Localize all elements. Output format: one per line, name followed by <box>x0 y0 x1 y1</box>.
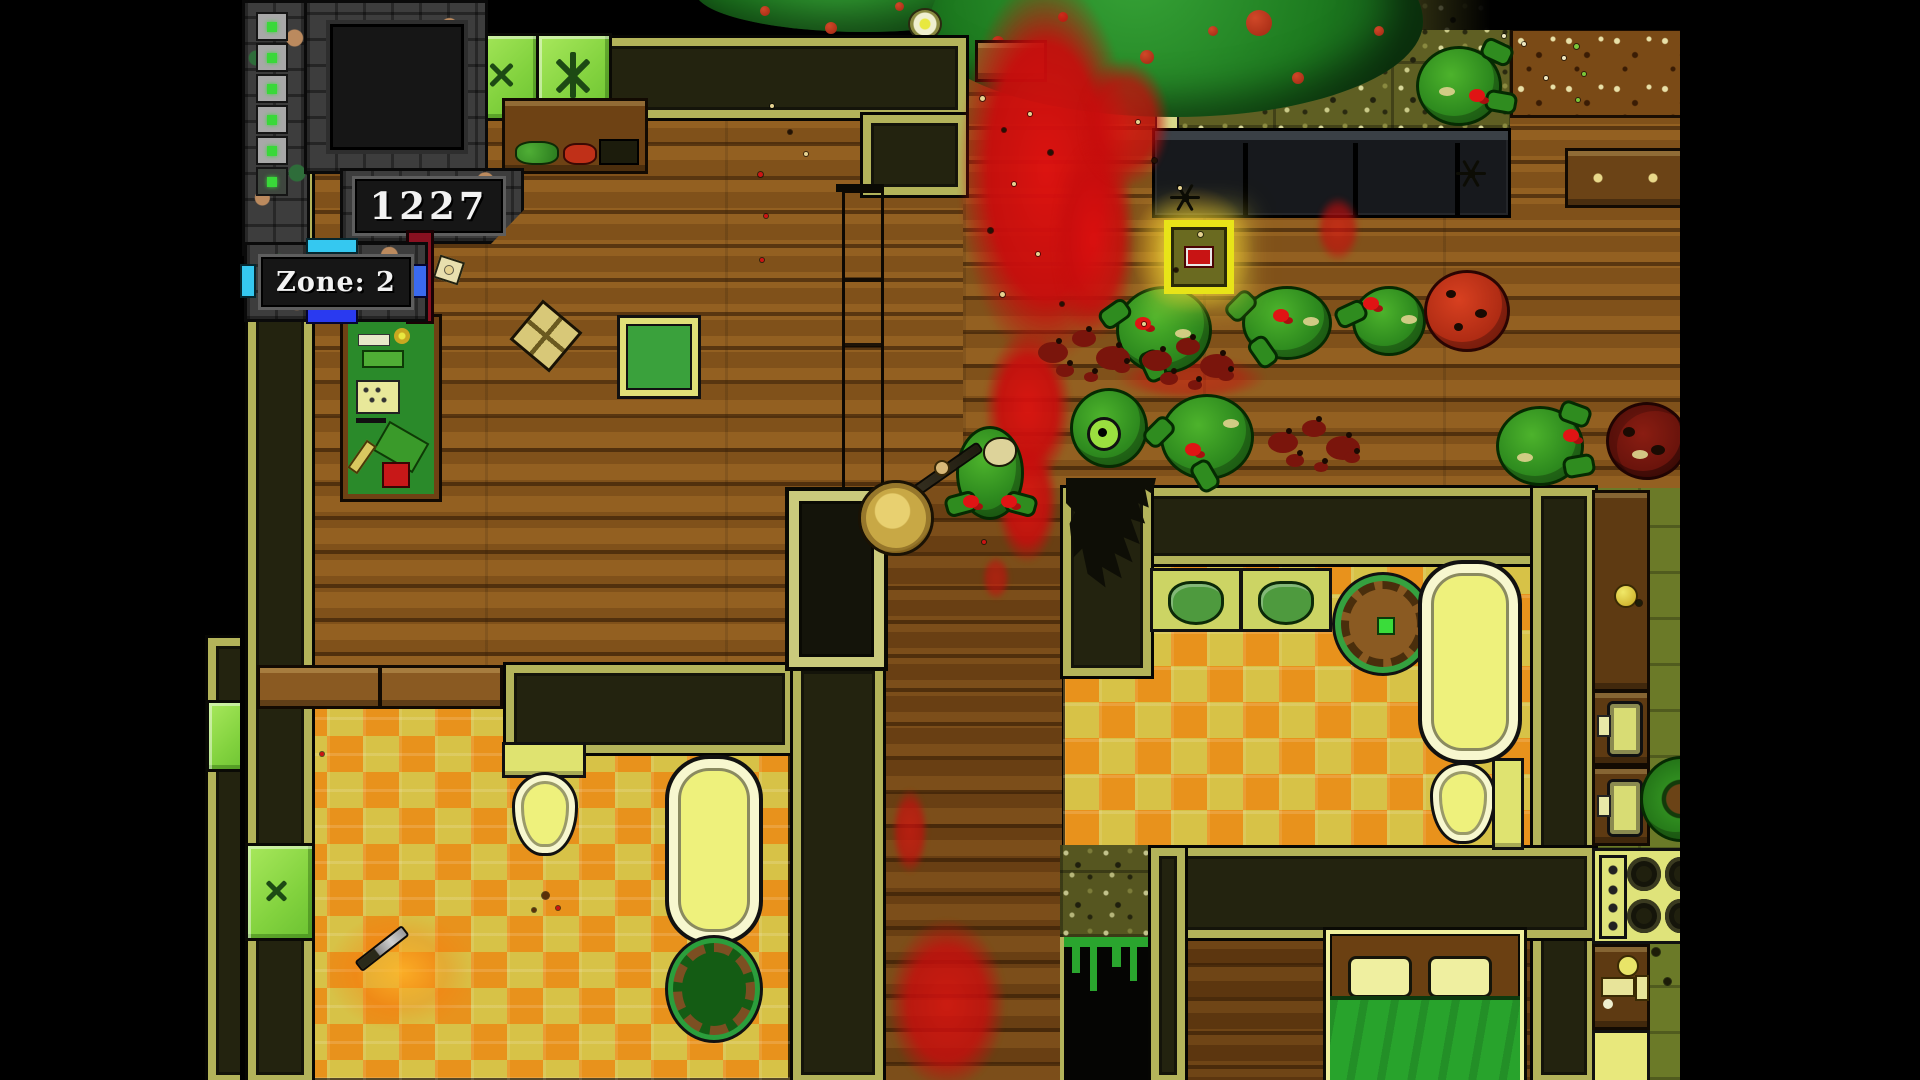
kitchen-pale-counter <box>1592 1030 1650 1080</box>
score-plate: 1227 <box>352 176 506 236</box>
zombie-corpse <box>1038 328 1138 394</box>
dirt-patch <box>1510 28 1680 118</box>
debris <box>804 152 808 156</box>
debris <box>445 266 453 274</box>
debris <box>764 214 768 218</box>
hud-weapon-slot[interactable] <box>326 20 468 154</box>
hot-tub[interactable] <box>665 935 763 1043</box>
moss-tile <box>1060 845 1150 937</box>
debris <box>1582 72 1586 76</box>
tomato <box>1292 72 1304 84</box>
wooden-door[interactable] <box>842 190 884 493</box>
bathtub[interactable] <box>665 755 763 945</box>
debris <box>1048 150 1053 155</box>
toilet-tank <box>1492 758 1524 850</box>
debris <box>1142 322 1146 326</box>
debris <box>1174 268 1178 272</box>
debris <box>320 752 324 756</box>
debris <box>1652 948 1660 956</box>
debris <box>760 258 764 262</box>
health-cell <box>256 136 288 165</box>
health-cell <box>256 105 288 134</box>
debris <box>1152 158 1157 163</box>
debris <box>758 172 763 177</box>
bug <box>1456 158 1486 188</box>
game-screen: 1227 Zone: 2 <box>0 0 1920 1080</box>
bathtub[interactable] <box>1418 560 1522 764</box>
tomato <box>895 2 904 11</box>
bathroom1-cabinet <box>379 665 503 709</box>
debris <box>1028 112 1032 116</box>
zombie-skull[interactable] <box>956 426 1024 520</box>
zone-tab-bottom <box>306 308 358 324</box>
window-green <box>245 843 315 941</box>
debris <box>1562 56 1566 60</box>
bedroom-left-wall <box>1148 845 1188 1080</box>
kitchen-condiments <box>1592 944 1650 1030</box>
zone-tab-left <box>240 264 256 298</box>
zombie-green[interactable] <box>1496 406 1584 486</box>
debris <box>1502 34 1506 38</box>
dark-pit <box>1060 937 1158 1080</box>
zombie-tomato <box>1424 270 1510 352</box>
sink[interactable] <box>1150 568 1242 632</box>
bathroom1-right-wall <box>790 660 886 1080</box>
blood-splatter <box>1078 58 1170 188</box>
zombie-green[interactable] <box>1352 286 1426 356</box>
debris <box>980 96 985 101</box>
desk <box>343 317 439 499</box>
bug <box>1170 182 1200 212</box>
tomato <box>1208 26 1218 36</box>
blood-splatter <box>892 788 928 874</box>
kitchen-sink-cell <box>1592 690 1650 766</box>
food-counter <box>502 98 648 174</box>
debris <box>1000 292 1005 297</box>
hud-health-bar <box>256 12 290 198</box>
zone-plate: Zone: 2 <box>258 254 414 310</box>
zombie-eyedead <box>1070 388 1148 468</box>
blood-splatter <box>982 556 1010 600</box>
debris <box>1178 186 1182 190</box>
drawer-cabinet <box>1565 148 1680 208</box>
bedroom-top-wall <box>1148 845 1598 941</box>
debris <box>556 906 560 910</box>
debris <box>788 130 792 134</box>
debris <box>1636 600 1642 606</box>
debris <box>1544 76 1548 80</box>
zombie-deadred <box>1606 402 1680 480</box>
debris <box>1522 42 1526 46</box>
health-cell <box>256 167 288 196</box>
health-cell <box>256 74 288 103</box>
bathroom2-right-wall <box>1530 485 1598 1080</box>
zombie-corpse <box>1142 336 1254 396</box>
zombie-corpse <box>1268 418 1370 472</box>
debris <box>1576 98 1580 102</box>
sink[interactable] <box>1240 568 1332 632</box>
debris <box>1574 44 1579 49</box>
health-cell <box>256 43 288 72</box>
zombie-green[interactable] <box>1242 286 1332 360</box>
tomato <box>760 6 770 16</box>
debris <box>1198 232 1203 237</box>
bathroom1-cabinet <box>257 665 381 709</box>
stove[interactable] <box>1592 848 1680 944</box>
health-cell <box>256 12 288 41</box>
tomato <box>1246 10 1272 36</box>
debris <box>1664 978 1671 985</box>
medkit-icon <box>1184 246 1214 268</box>
zombie-green[interactable] <box>1416 46 1502 126</box>
debris <box>770 104 774 108</box>
blood-splatter <box>888 918 1006 1080</box>
debris <box>1060 302 1064 306</box>
blood-splatter <box>1316 196 1360 262</box>
bed[interactable] <box>1326 930 1524 1080</box>
player-hand <box>934 460 950 476</box>
debris <box>988 228 993 233</box>
debris <box>1002 128 1006 132</box>
debris <box>1136 120 1140 124</box>
zone-tab-top <box>306 238 358 254</box>
yellow-item <box>1614 584 1638 608</box>
zone-label: Zone: 2 <box>276 267 396 298</box>
debris <box>1036 252 1040 256</box>
debris <box>532 908 536 912</box>
debris <box>982 540 986 544</box>
debris <box>1012 182 1016 186</box>
zone-tab-right <box>412 264 428 298</box>
zombie-green[interactable] <box>1160 394 1254 480</box>
tomato <box>825 22 837 34</box>
score-value: 1227 <box>370 184 489 228</box>
debris <box>542 892 549 899</box>
green-rug-table <box>620 318 698 396</box>
player-character[interactable] <box>858 480 934 556</box>
game-viewport[interactable]: 1227 Zone: 2 <box>240 0 1680 1080</box>
tomato <box>1374 26 1384 36</box>
